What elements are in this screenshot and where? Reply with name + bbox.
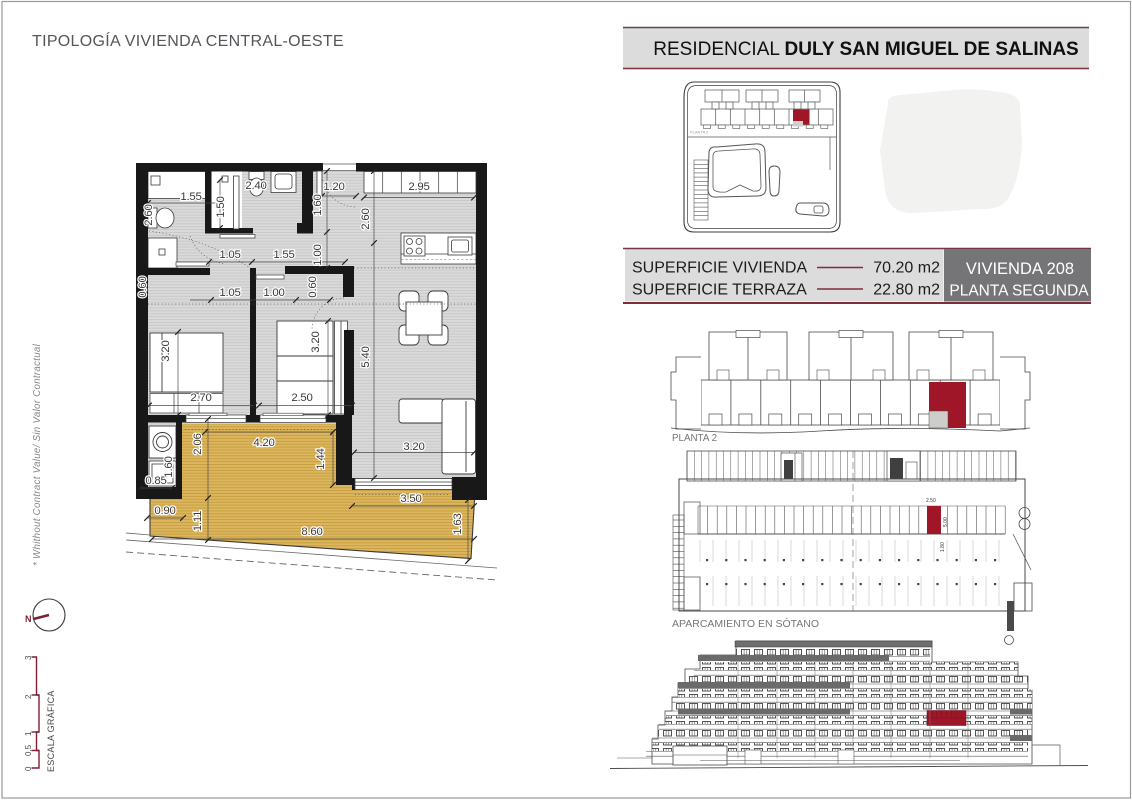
svg-text:SUPERFICIE VIVIENDA: SUPERFICIE VIVIENDA bbox=[632, 260, 807, 277]
svg-text:1.80: 1.80 bbox=[940, 542, 946, 552]
svg-text:1.60: 1.60 bbox=[163, 456, 175, 477]
svg-text:3.20: 3.20 bbox=[310, 331, 322, 352]
svg-text:APARCAMIENTO EN SÓTANO: APARCAMIENTO EN SÓTANO bbox=[672, 617, 819, 630]
svg-text:0: 0 bbox=[24, 766, 33, 771]
svg-text:N: N bbox=[25, 614, 32, 624]
svg-text:1.05: 1.05 bbox=[219, 287, 240, 299]
svg-text:1.63: 1.63 bbox=[452, 513, 464, 534]
svg-text:1.55: 1.55 bbox=[273, 249, 294, 261]
svg-text:1.55: 1.55 bbox=[180, 191, 201, 203]
svg-text:3.20: 3.20 bbox=[403, 441, 424, 453]
svg-text:2.40: 2.40 bbox=[245, 180, 266, 192]
svg-text:* Whithout Contract Value/ Si: * Whithout Contract Value/ Sin Valor Con… bbox=[32, 343, 43, 566]
svg-text:3: 3 bbox=[24, 655, 33, 660]
svg-text:0,5: 0,5 bbox=[24, 744, 33, 756]
svg-text:8.60: 8.60 bbox=[301, 526, 322, 538]
svg-text:2.70: 2.70 bbox=[190, 392, 211, 404]
svg-text:3.50: 3.50 bbox=[400, 493, 421, 505]
svg-text:2.50: 2.50 bbox=[926, 498, 936, 504]
svg-text:1.50: 1.50 bbox=[215, 196, 227, 217]
svg-text:TIPOLOGÍA VIVIENDA CENTRAL-OES: TIPOLOGÍA VIVIENDA CENTRAL-OESTE bbox=[32, 31, 344, 50]
svg-text:1.05: 1.05 bbox=[219, 249, 240, 261]
svg-text:RESIDENCIAL DULY SAN MIGUEL DE: RESIDENCIAL DULY SAN MIGUEL DE SALINAS bbox=[653, 39, 1078, 60]
svg-text:0.60: 0.60 bbox=[137, 276, 149, 297]
svg-text:ESCALA GRÁFICA: ESCALA GRÁFICA bbox=[46, 690, 56, 772]
svg-text:1.00: 1.00 bbox=[263, 287, 284, 299]
svg-text:1.20: 1.20 bbox=[323, 181, 344, 193]
svg-text:4.20: 4.20 bbox=[253, 437, 274, 449]
svg-text:0.90: 0.90 bbox=[154, 505, 175, 517]
svg-text:PLANTA 2: PLANTA 2 bbox=[672, 433, 717, 444]
svg-text:2.06: 2.06 bbox=[192, 433, 204, 454]
svg-text:1.11: 1.11 bbox=[192, 511, 204, 532]
svg-text:1: 1 bbox=[24, 731, 33, 736]
svg-text:1.60: 1.60 bbox=[312, 194, 324, 215]
svg-text:2.50: 2.50 bbox=[291, 392, 312, 404]
svg-text:5.40: 5.40 bbox=[360, 346, 372, 367]
svg-text:1.00: 1.00 bbox=[312, 244, 324, 265]
svg-text:0.60: 0.60 bbox=[307, 276, 319, 297]
svg-text:2.60: 2.60 bbox=[143, 204, 155, 225]
svg-text:SUPERFICIE TERRAZA: SUPERFICIE TERRAZA bbox=[632, 282, 807, 299]
svg-text:2.95: 2.95 bbox=[408, 181, 429, 193]
svg-text:2: 2 bbox=[24, 694, 33, 699]
svg-text:PLANTA 2: PLANTA 2 bbox=[690, 130, 709, 135]
svg-text:5.00: 5.00 bbox=[943, 517, 949, 527]
svg-text:3.20: 3.20 bbox=[160, 340, 172, 361]
svg-text:2.60: 2.60 bbox=[360, 208, 372, 229]
svg-text:1.44: 1.44 bbox=[315, 448, 327, 469]
svg-text:70.20 m2: 70.20 m2 bbox=[873, 260, 940, 277]
svg-text:VIVIENDA 208: VIVIENDA 208 bbox=[966, 260, 1074, 278]
svg-text:22.80 m2: 22.80 m2 bbox=[873, 282, 940, 299]
svg-text:PLANTA SEGUNDA: PLANTA SEGUNDA bbox=[949, 283, 1089, 300]
